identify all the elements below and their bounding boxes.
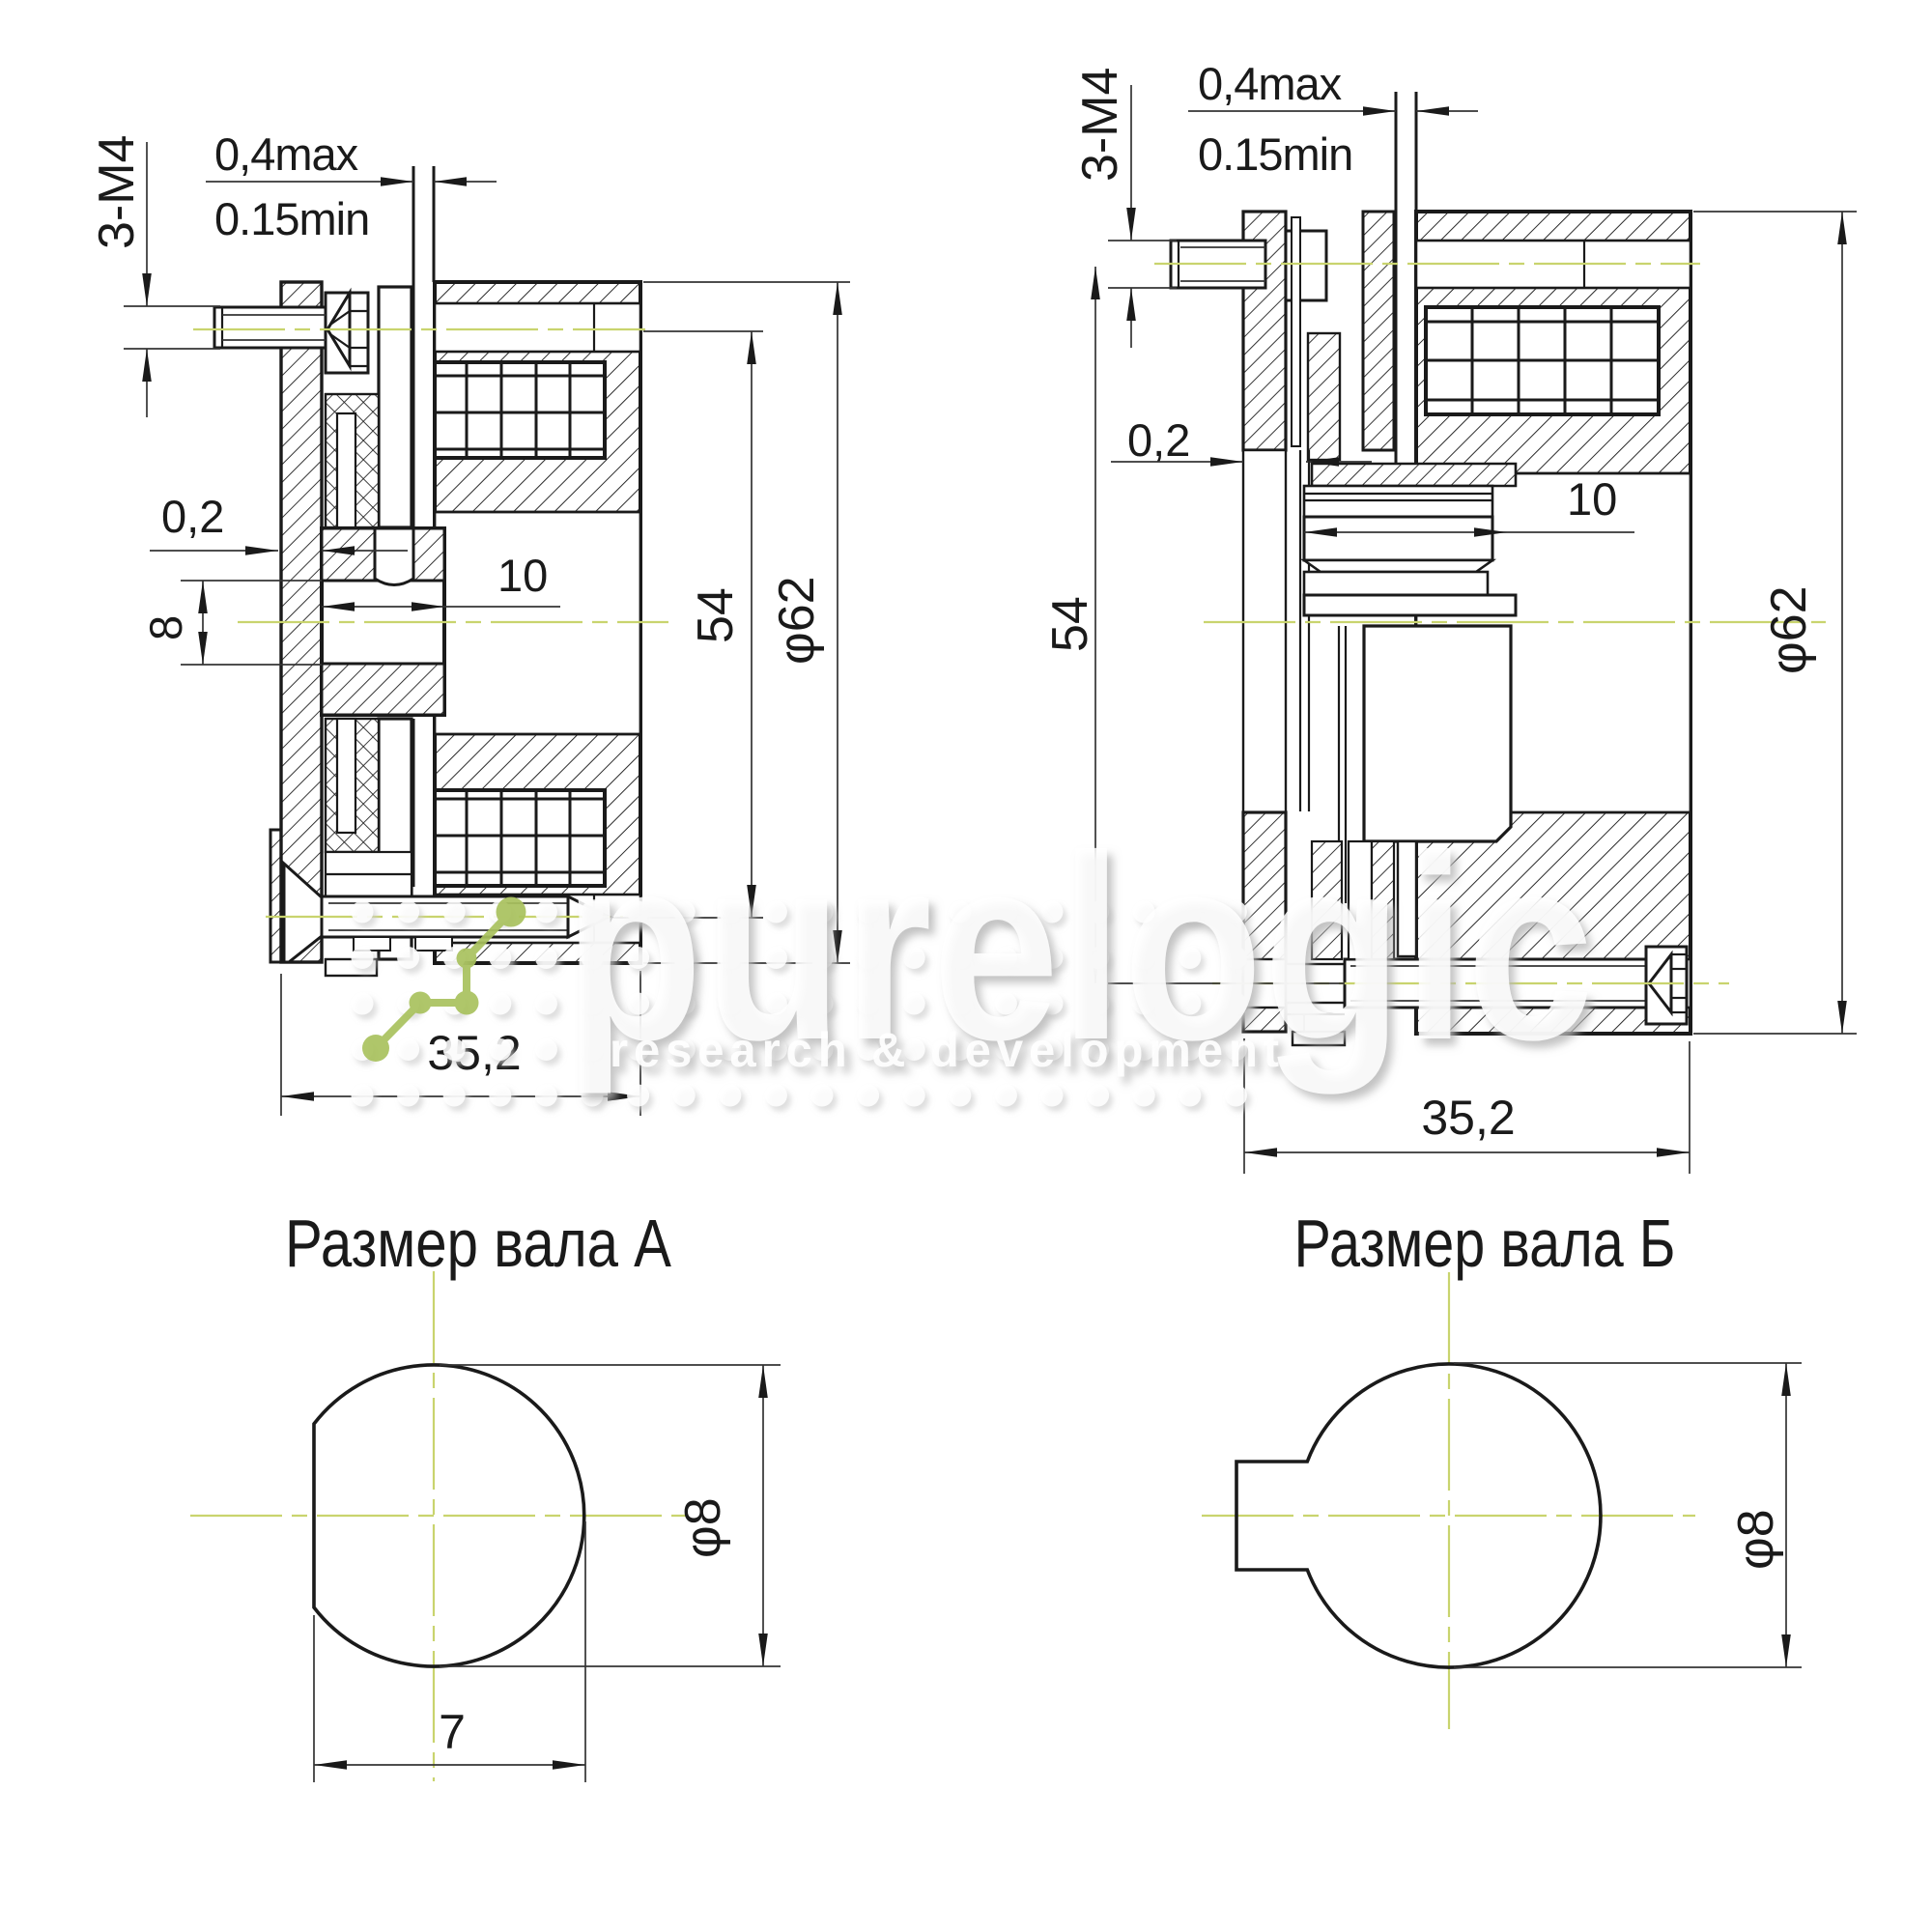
svg-text:10: 10: [1567, 473, 1617, 525]
svg-text:54: 54: [1042, 596, 1098, 652]
svg-text:0,4max: 0,4max: [214, 128, 358, 180]
svg-text:Размер вала А: Размер вала А: [285, 1206, 671, 1281]
svg-text:10: 10: [497, 550, 548, 601]
svg-text:0.15min: 0.15min: [1198, 128, 1352, 180]
svg-text:3-М4: 3-М4: [1072, 68, 1128, 182]
svg-text:φ62: φ62: [769, 576, 825, 665]
svg-text:φ62: φ62: [1761, 585, 1817, 674]
svg-text:0.15min: 0.15min: [214, 193, 369, 244]
svg-text:φ8: φ8: [1728, 1509, 1784, 1570]
svg-text:0,2: 0,2: [1127, 414, 1190, 466]
svg-text:35,2: 35,2: [1421, 1091, 1515, 1145]
svg-text:8: 8: [140, 615, 191, 640]
svg-text:3-М4: 3-М4: [89, 135, 145, 249]
svg-text:0,2: 0,2: [161, 491, 224, 542]
svg-text:Размер вала Б: Размер вала Б: [1294, 1206, 1676, 1281]
svg-text:7: 7: [439, 1705, 466, 1759]
svg-text:0,4max: 0,4max: [1198, 58, 1342, 109]
svg-text:φ8: φ8: [675, 1497, 731, 1558]
svg-text:54: 54: [688, 587, 744, 643]
svg-text:research & development: research & development: [610, 1023, 1285, 1077]
